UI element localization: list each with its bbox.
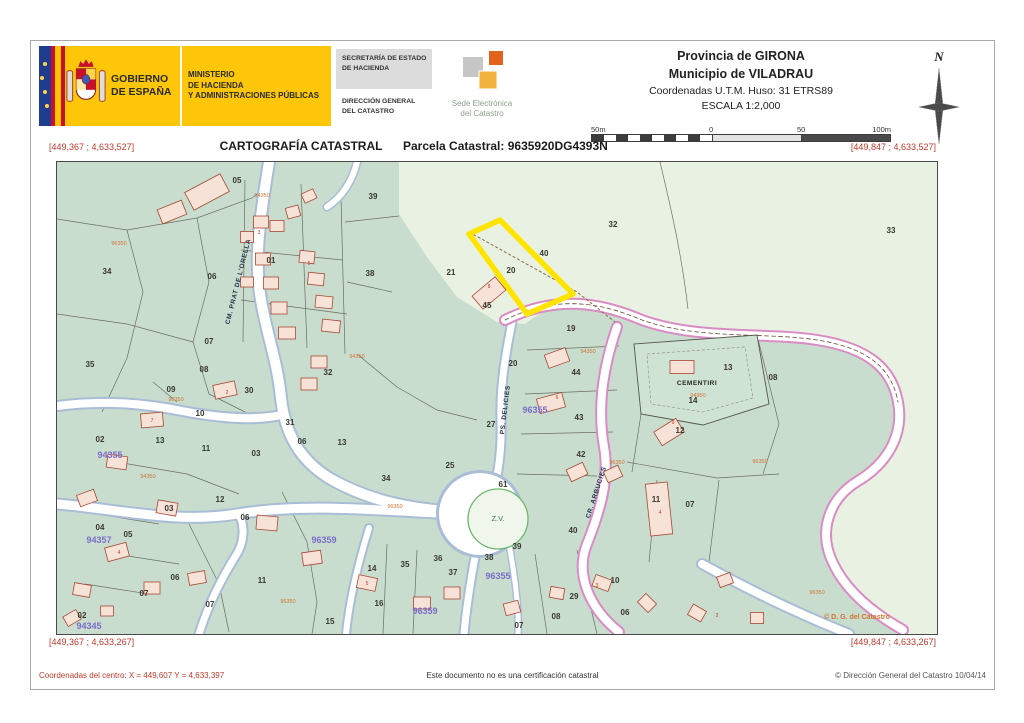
map-label: 12 [216, 495, 225, 504]
scale-tick-label: 50m [591, 125, 606, 134]
building [188, 571, 207, 586]
map-label: 40 [540, 249, 549, 258]
scale-tick-label: 100m [872, 125, 891, 134]
map-label: 10 [611, 576, 620, 585]
flag-stripes-icon [39, 46, 65, 126]
scale-tick-label: 50 [797, 125, 805, 134]
cadastral-map: 0534350607080901303239383233204045192120… [56, 161, 938, 635]
compass-north-label: N [909, 49, 969, 65]
map-label: 39 [513, 542, 522, 551]
map-label: 96350 [809, 590, 824, 596]
map-label: 21 [447, 268, 456, 277]
map-label: 96350 [387, 504, 402, 510]
building [444, 587, 460, 599]
map-label: 08 [769, 373, 778, 382]
map-label: 45 [483, 301, 492, 310]
map-label: 96350 [111, 241, 126, 247]
map-label: 3 [596, 583, 599, 589]
map-label: 94350 [140, 474, 155, 480]
map-label: 06 [171, 573, 180, 582]
map-label: 07 [206, 600, 215, 609]
map-label: 32 [324, 368, 333, 377]
map-label: Z.V. [491, 514, 504, 523]
scale-bar-labels: 50m 0 50 100m [591, 125, 891, 134]
map-label: CEMENTIRI [677, 380, 717, 387]
spain-flag-and-arms: GOBIERNO DE ESPAÑA [39, 46, 180, 126]
municipio-label: Municipio de VILADRAU [586, 67, 896, 81]
map-label: 96350 [609, 460, 624, 466]
map-label: 37 [449, 568, 458, 577]
map-label: 05 [124, 530, 133, 539]
map-label: 03 [252, 449, 261, 458]
corner-coord-top-left: [449,367 ; 4,633,527] [49, 142, 134, 152]
gobierno-label: GOBIERNO DE ESPAÑA [111, 73, 171, 98]
map-label: 15 [326, 617, 335, 626]
map-label: 38 [485, 553, 494, 562]
map-label: 5 [366, 581, 369, 587]
building [73, 583, 92, 598]
map-label: 96350 [168, 397, 183, 403]
provincia-label: Provincia de GIRONA [586, 49, 896, 63]
map-label: 34 [103, 267, 112, 276]
map-label: 03 [165, 504, 174, 513]
map-label: 43 [575, 413, 584, 422]
map-label: 35 [401, 560, 410, 569]
map-label: 4 [659, 510, 662, 516]
map-label: 38 [366, 269, 375, 278]
sede-electronica-label: Sede Electrónica del Catastro [435, 99, 529, 119]
corner-coord-bottom-right: [449,847 ; 4,633,267] [851, 637, 936, 647]
map-label: 11 [258, 576, 267, 585]
map-label: 20 [507, 266, 516, 275]
map-label: 3 [258, 230, 261, 236]
map-label: 07 [515, 621, 524, 630]
building [311, 356, 327, 368]
map-label: 96355 [522, 405, 547, 415]
cadastral-document: GOBIERNO DE ESPAÑA MINISTERIO DE HACIEND… [30, 40, 995, 690]
map-label: 94350 [254, 193, 269, 199]
map-label: 10 [196, 409, 205, 418]
map-label: 06 [621, 608, 630, 617]
corner-coord-top-right: [449,847 ; 4,633,527] [851, 142, 936, 152]
building [321, 319, 340, 333]
map-label: 08 [552, 612, 561, 621]
map-label: 6 [556, 395, 559, 401]
document-title: CARTOGRAFÍA CATASTRAL [171, 139, 431, 153]
map-label: 29 [570, 592, 579, 601]
corner-coord-bottom-left: [449,367 ; 4,633,267] [49, 637, 134, 647]
map-label: 30 [245, 386, 254, 395]
building [254, 216, 269, 228]
map-label: 42 [577, 450, 586, 459]
building [315, 295, 333, 309]
map-label: 33 [887, 226, 896, 235]
map-label: 40 [569, 526, 578, 535]
map-label: 11 [202, 444, 211, 453]
building [101, 606, 114, 616]
map-label: 96350 [280, 599, 295, 605]
scale-tick-label: 0 [709, 125, 713, 134]
map-label: 94350 [349, 354, 364, 360]
map-label: 8 [488, 284, 491, 290]
map-label: 94950 [690, 393, 705, 399]
building [279, 327, 296, 339]
map-label: 94357 [86, 535, 111, 545]
map-label: 32 [609, 220, 618, 229]
map-label: 36 [434, 554, 443, 563]
map-label: 94355 [97, 450, 122, 460]
map-label: 31 [286, 418, 295, 427]
map-label: 01 [267, 256, 276, 265]
map-label: 13 [338, 438, 347, 447]
sede-electronica-logo: Sede Electrónica del Catastro [435, 49, 529, 119]
ministerio-label: MINISTERIO DE HACIENDA Y ADMINISTRACIONE… [182, 70, 331, 102]
scale-bar-graphic [591, 134, 891, 142]
map-label: 4 [118, 550, 121, 556]
building [271, 302, 287, 314]
coat-of-arms-icon [65, 55, 107, 117]
map-label: 96350 [752, 459, 767, 465]
map-label: 96359 [311, 535, 336, 545]
map-label: 07 [686, 500, 695, 509]
map-label: © D. G. del Catastro [824, 613, 890, 621]
map-label: 14 [368, 564, 377, 573]
building [670, 361, 694, 374]
scale-bar: 50m 0 50 100m [591, 125, 891, 143]
map-label: 13 [156, 436, 165, 445]
map-label: 44 [572, 368, 581, 377]
map-label: 07 [140, 589, 149, 598]
utm-info-label: Coordenadas U.T.M. Huso: 31 ETRS89 [586, 85, 896, 97]
map-label: 39 [369, 192, 378, 201]
direccion-label: DIRECCIÓN GENERAL DEL CATASTRO [342, 97, 434, 116]
map-label: 20 [509, 359, 518, 368]
map-label: 94345 [76, 621, 101, 631]
map-label: 2 [716, 613, 719, 619]
sede-squares-icon [455, 49, 509, 93]
building [549, 586, 565, 599]
map-label: 04 [96, 523, 105, 532]
map-label: 06 [298, 437, 307, 446]
map-label: 07 [205, 337, 214, 346]
map-label: 06 [241, 513, 250, 522]
map-label: 96355 [485, 571, 510, 581]
building [751, 613, 764, 624]
building [301, 378, 317, 390]
map-label: 5 [308, 261, 311, 267]
compass-rose: N [909, 49, 969, 153]
map-label: 11 [652, 495, 661, 504]
scale-label: ESCALA 1:2,000 [586, 100, 896, 112]
compass-star-icon [910, 65, 968, 149]
map-label: 25 [446, 461, 455, 470]
map-canvas: 0534350607080901303239383233204045192120… [57, 162, 937, 634]
building [256, 515, 278, 531]
map-label: 02 [96, 435, 105, 444]
map-label: 61 [499, 480, 508, 489]
map-label: 34 [382, 474, 391, 483]
building [302, 550, 323, 566]
building [264, 277, 279, 289]
map-label: 96359 [412, 606, 437, 616]
map-label: 2 [226, 390, 229, 396]
secretaria-label: SECRETARÍA DE ESTADO DE HACIENDA [336, 49, 432, 89]
copyright-label: © Dirección General del Catastro 10/04/1… [835, 671, 986, 680]
map-label: 09 [167, 385, 176, 394]
map-header-info: Provincia de GIRONA Municipio de VILADRA… [586, 47, 896, 112]
map-label: 7 [151, 418, 154, 424]
building [307, 272, 324, 286]
map-label: 13 [724, 363, 733, 372]
government-logo: GOBIERNO DE ESPAÑA MINISTERIO DE HACIEND… [39, 46, 331, 126]
map-label: 06 [208, 272, 217, 281]
map-label: 9 [672, 420, 675, 426]
map-label: 05 [233, 176, 242, 185]
map-label: 08 [200, 365, 209, 374]
building [270, 221, 284, 232]
map-label: 16 [375, 599, 384, 608]
parcel-reference: Parcela Catastral: 9635920DG4393N [403, 139, 608, 153]
map-label: 12 [676, 426, 685, 435]
map-label: 19 [567, 324, 576, 333]
map-label: 35 [86, 360, 95, 369]
map-label: 27 [487, 420, 496, 429]
map-label: 94350 [580, 349, 595, 355]
map-label: 02 [78, 611, 87, 620]
